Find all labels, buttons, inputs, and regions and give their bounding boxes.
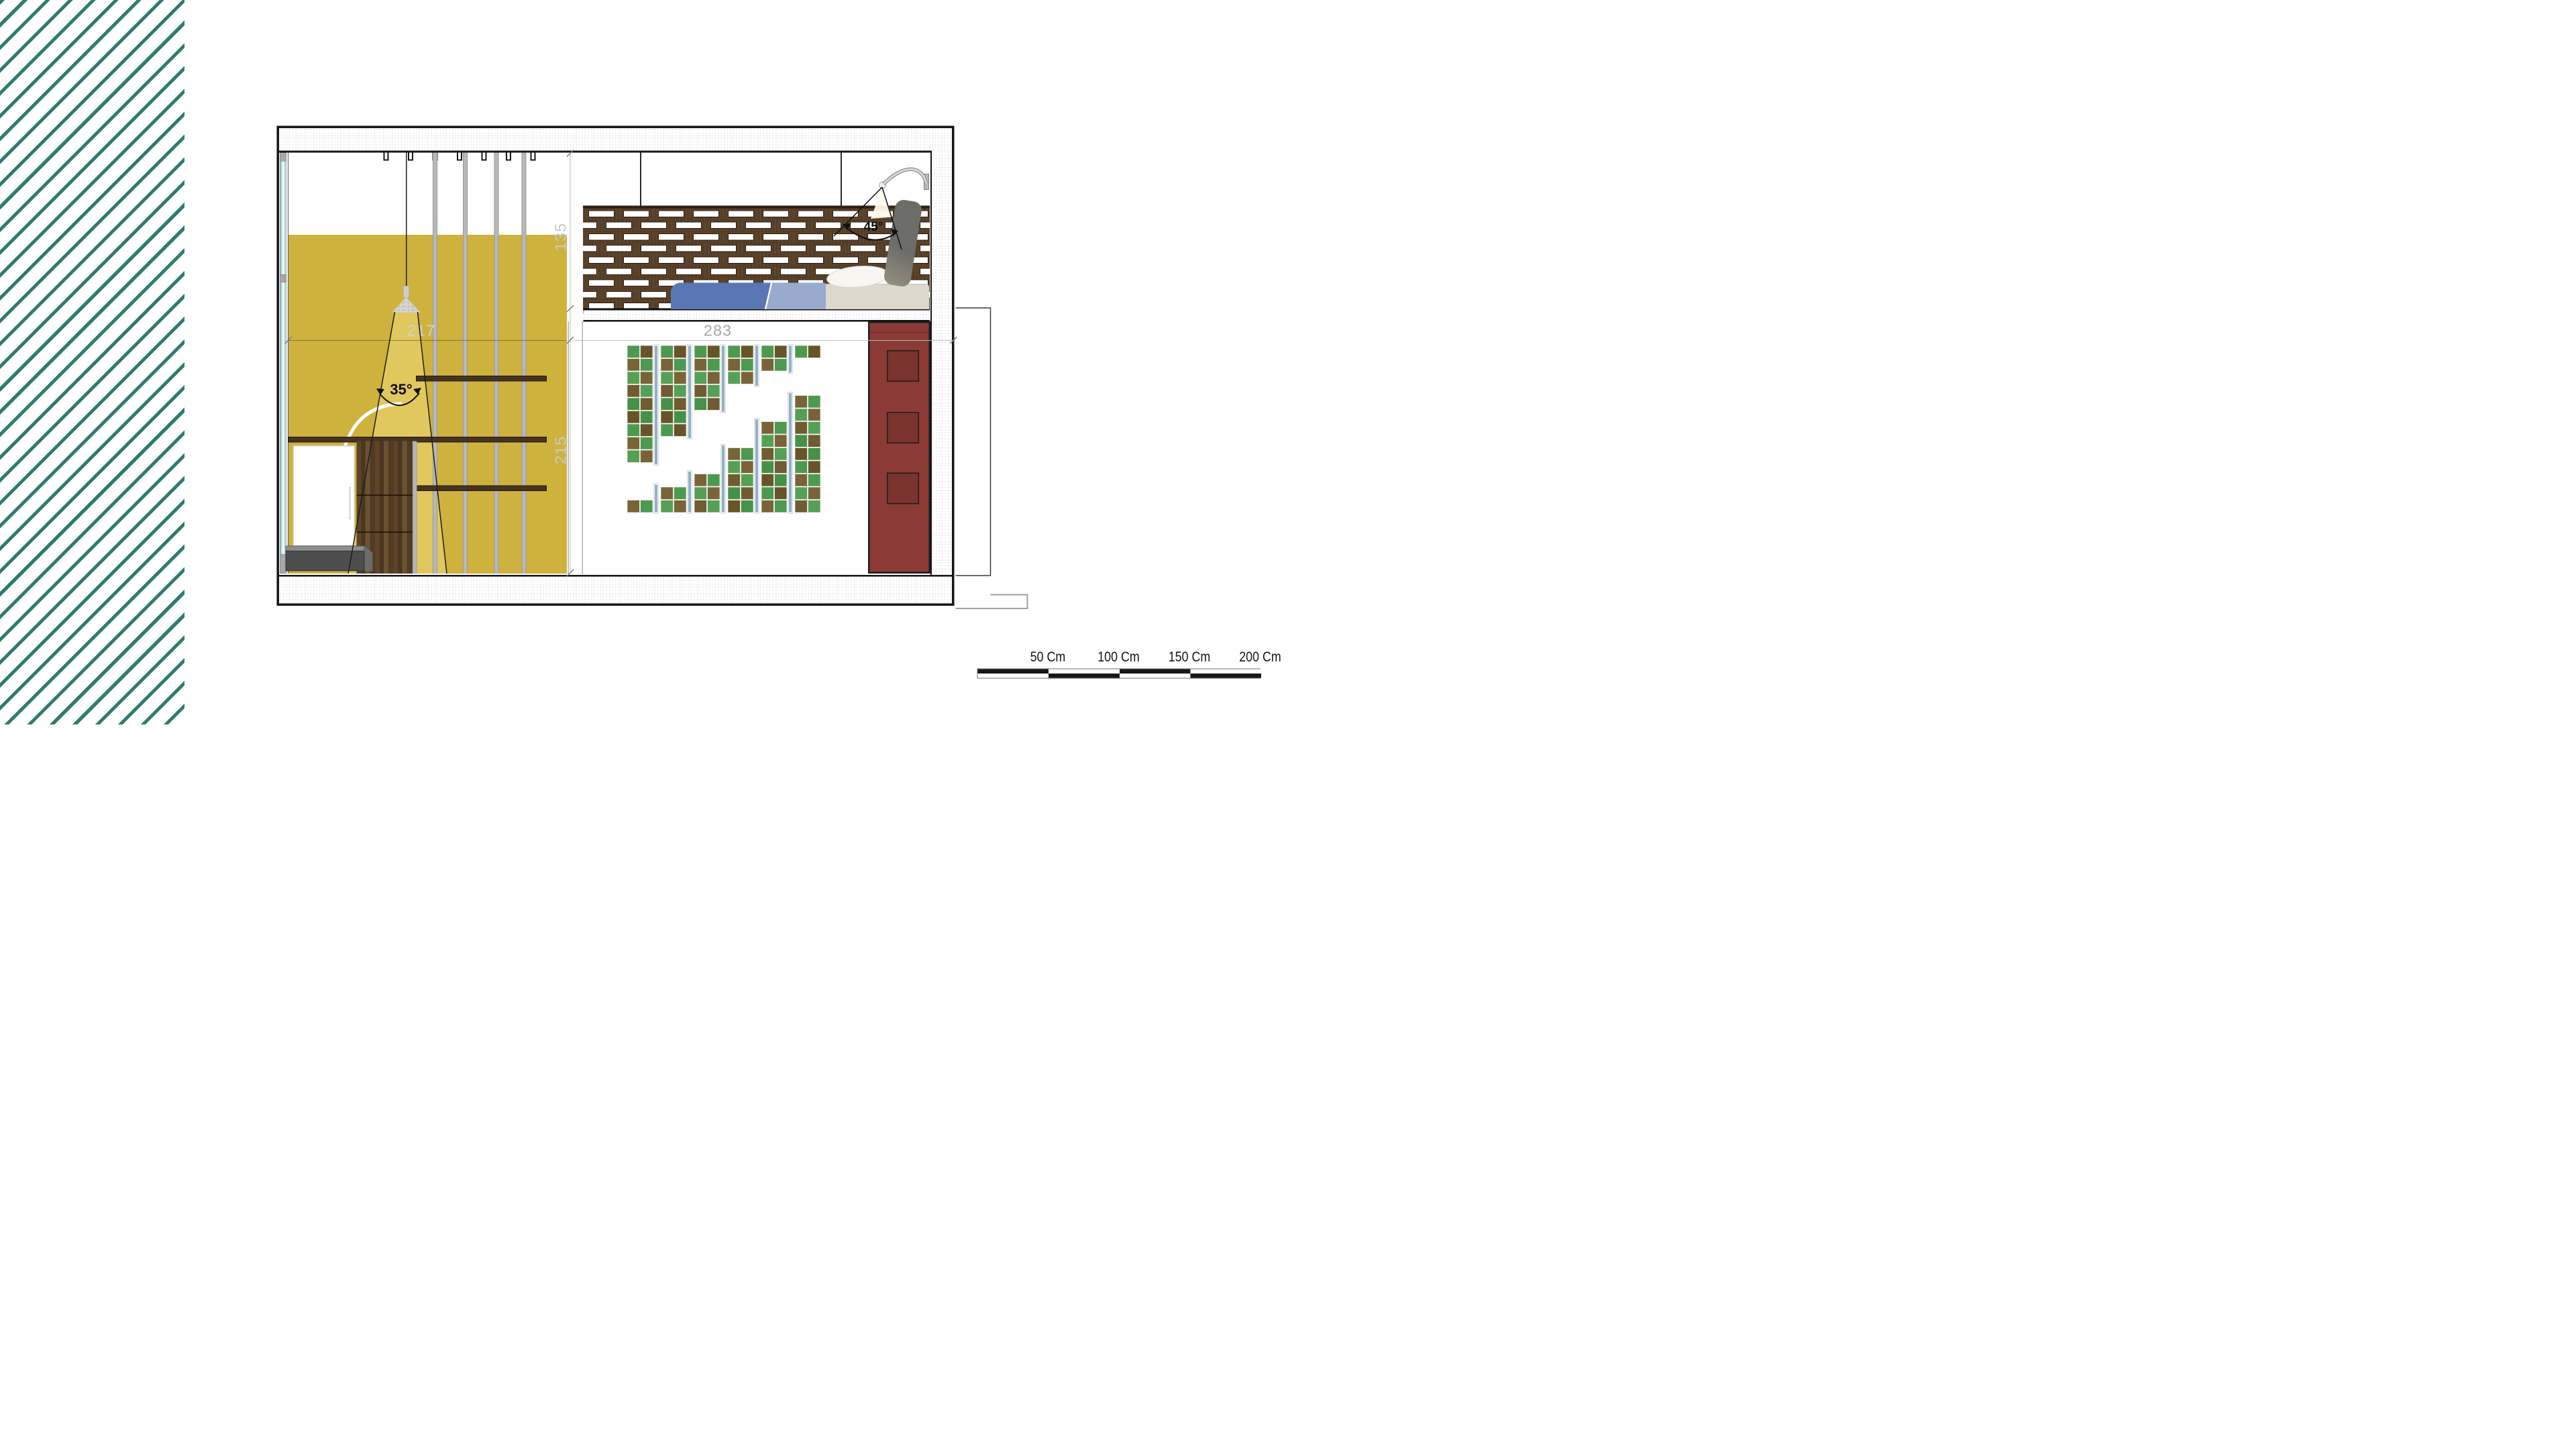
checker-tile [795, 345, 808, 358]
checker-tile [627, 398, 640, 411]
lattice-hole [606, 268, 632, 276]
ceiling-hook [506, 153, 511, 161]
lattice-hole [745, 222, 771, 229]
checker-tile [741, 461, 754, 474]
checker-blue-strip [788, 345, 793, 374]
scale-bar [977, 669, 1261, 679]
checker-tile [808, 500, 821, 513]
checker-tile [741, 474, 754, 487]
red-panel-inset-2 [887, 412, 919, 443]
checker-blue-strip [788, 392, 793, 514]
lattice-hole [588, 280, 614, 287]
checker-blue-strip [721, 345, 726, 413]
dim-line-horizontal-yellow [288, 340, 567, 341]
lattice-hole [606, 291, 632, 299]
checker-tile [741, 487, 754, 500]
lamp-wall-mount [924, 174, 929, 190]
checker-tile [795, 487, 808, 500]
lattice-hole [588, 233, 614, 241]
checker-tile [641, 450, 653, 463]
lattice-hole [815, 245, 841, 252]
screen-rod-right [841, 153, 842, 207]
lattice-hole [710, 268, 737, 276]
lattice-hole [583, 268, 597, 276]
wall-slat [494, 153, 499, 574]
checker-tile [741, 448, 754, 461]
checker-tile [795, 500, 808, 513]
checker-blue-strip [654, 484, 659, 513]
checker-tile [641, 359, 653, 372]
bed-mattress [826, 284, 929, 309]
checker-tile [694, 345, 707, 358]
checker-tile [694, 385, 707, 398]
scale-label-150: 150 Cm [1169, 649, 1211, 665]
checker-tile [795, 409, 808, 421]
screen-rod-left [640, 153, 641, 207]
checker-tile [741, 500, 754, 513]
checker-blue-strip [755, 345, 759, 387]
lattice-hole [798, 233, 824, 241]
checker-tile [674, 398, 687, 411]
lattice-hole [920, 268, 930, 276]
checker-tile [761, 461, 774, 474]
scale-segment [1190, 674, 1261, 678]
glazing-mullion-mid [280, 274, 286, 282]
checker-tile [627, 345, 640, 358]
checker-tile [775, 345, 788, 358]
checker-tile [694, 359, 707, 372]
checker-tile [627, 437, 640, 450]
lattice-hole [920, 245, 930, 252]
lattice-hole [763, 256, 789, 264]
checker-tile [627, 411, 640, 424]
angle-label-45: 45° [864, 219, 883, 234]
ceiling-band [279, 128, 952, 153]
dim-line-vertical [570, 154, 571, 574]
checker-tile [775, 461, 788, 474]
lattice-hole [710, 222, 737, 229]
checker-tile [661, 385, 674, 398]
checker-tile [641, 345, 653, 358]
lattice-hole [815, 222, 841, 229]
checker-tile [641, 398, 653, 411]
lattice-hole [693, 256, 719, 264]
lattice-hole [583, 222, 597, 229]
lattice-hole [658, 233, 684, 241]
lattice-hole [780, 222, 806, 229]
floor-band [279, 575, 952, 604]
checker-tile [674, 500, 687, 513]
pendant-cord [406, 153, 407, 287]
lattice-hole [641, 291, 667, 299]
side-callout-rect [956, 308, 991, 576]
lattice-hole [920, 222, 930, 229]
checker-tile [728, 345, 741, 358]
checker-tile [741, 345, 754, 358]
angle-label-35: 35° [390, 382, 412, 398]
checker-tile [761, 422, 774, 435]
checker-tile [708, 474, 720, 487]
checker-tile [728, 461, 741, 474]
checker-blue-strip [721, 445, 726, 514]
checker-tile [627, 359, 640, 372]
checker-tile [694, 487, 707, 500]
wardrobe-side-trim [413, 441, 417, 574]
scale-label-200: 200 Cm [1239, 649, 1281, 665]
checker-tile [808, 474, 821, 487]
checker-tile [761, 345, 774, 358]
checker-tile [808, 345, 821, 358]
dim-label-135: 135 [551, 223, 570, 251]
checker-tile [674, 359, 687, 372]
checker-tile [808, 435, 821, 447]
bench-top [286, 546, 365, 551]
lattice-hole [583, 245, 597, 252]
lattice-hole [623, 233, 649, 241]
shelf-middle [288, 437, 547, 443]
checker-tile [694, 372, 707, 384]
ceiling-hook [482, 153, 487, 161]
wardrobe-divider-1 [357, 495, 413, 496]
checker-tile [775, 448, 788, 461]
lattice-hole [623, 280, 649, 287]
checker-tile [728, 448, 741, 461]
checker-tile [674, 345, 687, 358]
glazing-mullion-top [280, 153, 286, 162]
lattice-hole [833, 211, 859, 218]
checker-blue-strip [688, 345, 692, 439]
checker-tile [694, 474, 707, 487]
lattice-hole [676, 245, 702, 252]
checker-tile [694, 398, 707, 411]
checker-tile [728, 372, 741, 384]
checker-tile [641, 385, 653, 398]
red-panel-inset-1 [887, 350, 919, 382]
checker-tile [795, 448, 808, 461]
drawing-stage: 217 283 135 215 35° 45° 50 Cm 100 Cm 150… [0, 0, 1288, 724]
lattice-hole [745, 245, 771, 252]
right-wall-strip [930, 151, 952, 576]
lattice-hole [641, 268, 667, 276]
checker-tile [761, 474, 774, 487]
lattice-hole [763, 211, 789, 218]
checker-tile [775, 487, 788, 500]
lattice-hole [693, 211, 719, 218]
lattice-hole [833, 256, 859, 264]
checker-tile [708, 398, 720, 411]
ceiling-hook [531, 153, 536, 161]
checker-tile [641, 424, 653, 437]
checker-tile [808, 448, 821, 461]
bed-blanket [671, 283, 826, 310]
checker-tile [661, 345, 674, 358]
red-panel-topline [870, 332, 929, 333]
checker-tile [661, 424, 674, 437]
side-callout-step [956, 595, 1028, 609]
lattice-hole [850, 245, 876, 252]
checker-tile [808, 396, 821, 409]
wall-slat [522, 153, 527, 574]
checker-tile [708, 372, 720, 384]
checker-tile [641, 372, 653, 384]
scale-segment [1049, 674, 1120, 678]
checker-tile [728, 500, 741, 513]
checker-tile [674, 372, 687, 384]
left-glazing-strip [280, 153, 286, 574]
checker-tile [674, 487, 687, 500]
pendant-stem [403, 286, 409, 298]
checker-tile [641, 500, 653, 513]
checker-tile [708, 359, 720, 372]
dim-label-217: 217 [407, 321, 435, 339]
checker-tile [708, 385, 720, 398]
checker-tile [641, 437, 653, 450]
checker-tile [627, 372, 640, 384]
checker-tile [761, 500, 774, 513]
mezzanine-platform [584, 309, 930, 322]
lattice-hole [798, 256, 824, 264]
architectural-section-screenshot: 217 283 135 215 35° 45° 50 Cm 100 Cm 150… [0, 0, 1288, 724]
lattice-hole [710, 245, 737, 252]
checker-tile [674, 411, 687, 424]
checker-tile [728, 487, 741, 500]
checker-blue-strip [654, 345, 659, 466]
lattice-hole [745, 268, 771, 276]
checker-tile [761, 448, 774, 461]
checker-tile [708, 345, 720, 358]
dim-label-283: 283 [704, 321, 732, 339]
lattice-hole [833, 233, 859, 241]
checker-tile [661, 500, 674, 513]
ceiling-hook [457, 153, 462, 161]
lattice-hole [728, 211, 754, 218]
checker-tile [661, 411, 674, 424]
dim-label-215: 215 [551, 436, 570, 464]
checker-blue-strip [755, 419, 759, 514]
lower-wall-line-2 [582, 321, 584, 574]
checker-tile [761, 487, 774, 500]
lattice-hole [728, 256, 754, 264]
checker-tile [795, 461, 808, 474]
scale-segment [1120, 674, 1191, 678]
scale-label-100: 100 Cm [1097, 649, 1140, 665]
checker-tile [741, 359, 754, 372]
checker-tile [661, 487, 674, 500]
checker-tile [627, 424, 640, 437]
checker-tile [775, 474, 788, 487]
door [293, 445, 356, 546]
ceiling-hook [408, 153, 413, 161]
lattice-hole [641, 245, 667, 252]
checker-tile [808, 461, 821, 474]
scale-label-50: 50 Cm [1030, 649, 1066, 665]
lattice-hole [798, 211, 824, 218]
checker-tile [641, 411, 653, 424]
lattice-hole [623, 256, 649, 264]
checker-tile [808, 409, 821, 421]
lattice-hole [623, 211, 649, 218]
checker-tile [761, 435, 774, 447]
checker-tile [728, 474, 741, 487]
door-handle [349, 487, 351, 519]
bench-front [286, 551, 365, 572]
red-panel-inset-3 [887, 473, 919, 504]
checker-tile [708, 487, 720, 500]
checker-tile [708, 500, 720, 513]
checker-tile [775, 500, 788, 513]
dim-line-horizontal-white [574, 340, 954, 341]
diagonal-stripe-band [0, 0, 184, 724]
checker-tile [795, 435, 808, 447]
lattice-hole [641, 222, 667, 229]
wall-slat [433, 153, 437, 574]
checker-tile [775, 435, 788, 447]
lattice-hole [763, 233, 789, 241]
checker-tile [795, 474, 808, 487]
lattice-hole [693, 233, 719, 241]
wall-slat [463, 153, 468, 574]
checker-blue-strip [688, 471, 692, 514]
shelf-bottom [416, 486, 547, 492]
checker-tile [627, 450, 640, 463]
checker-tile [661, 372, 674, 384]
checker-tile [775, 422, 788, 435]
lattice-hole [588, 211, 614, 218]
ceiling-hook [384, 153, 389, 161]
wardrobe-divider-2 [357, 532, 413, 533]
lattice-hole [606, 245, 632, 252]
checker-tile [674, 385, 687, 398]
lattice-hole [606, 222, 632, 229]
checker-tile [808, 422, 821, 435]
checker-tile [674, 424, 687, 437]
checker-tile [627, 385, 640, 398]
checker-tile [761, 359, 774, 372]
checker-tile [728, 359, 741, 372]
lattice-hole [780, 268, 806, 276]
lamp-head [879, 182, 886, 189]
checker-tile [627, 500, 640, 513]
checker-tile [741, 372, 754, 384]
lattice-hole [658, 211, 684, 218]
lattice-hole [658, 256, 684, 264]
lattice-hole [676, 222, 702, 229]
checker-tile [775, 359, 788, 372]
checker-tile [795, 396, 808, 409]
scale-segment [978, 674, 1049, 678]
lattice-hole [728, 233, 754, 241]
checker-tile [661, 398, 674, 411]
shelf-top [416, 376, 547, 382]
checker-tile [795, 422, 808, 435]
checker-tile [694, 500, 707, 513]
checker-tile [808, 487, 821, 500]
lattice-hole [780, 245, 806, 252]
lattice-hole [583, 291, 597, 299]
lattice-hole [588, 256, 614, 264]
lattice-hole [676, 268, 702, 276]
checker-tile [661, 359, 674, 372]
